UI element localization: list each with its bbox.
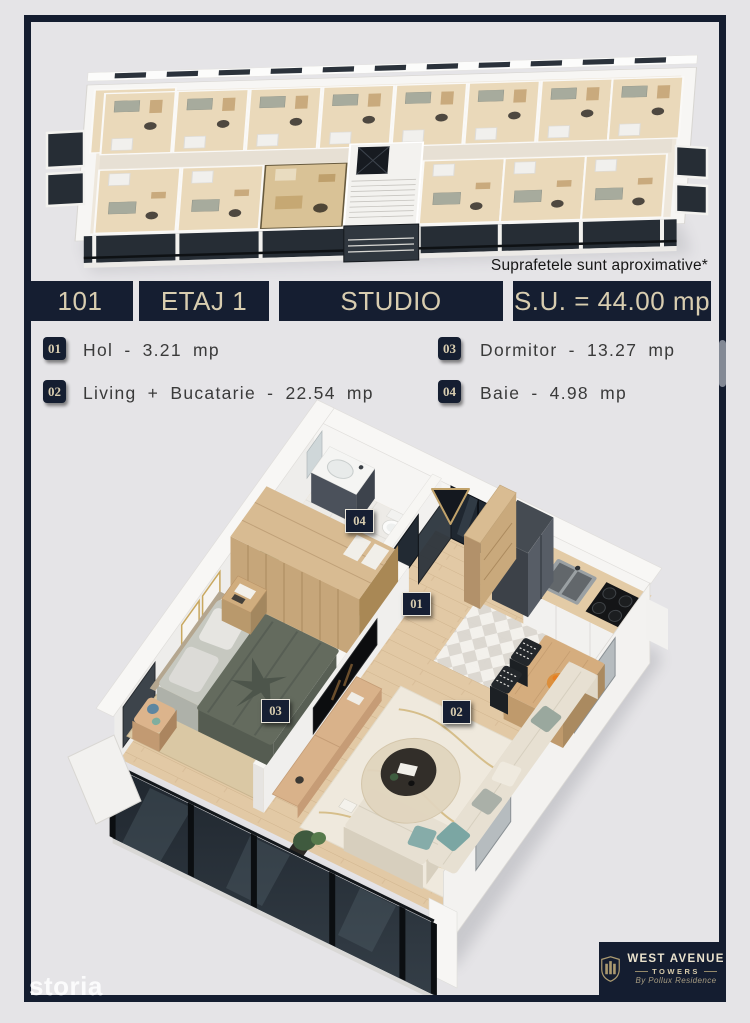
legend-num-03: 03 <box>438 337 461 360</box>
bedroom-window <box>123 662 155 747</box>
crest-icon <box>600 955 621 983</box>
floors <box>112 472 641 915</box>
logo-tagline: By Pollux Residence <box>636 976 717 986</box>
kitchen-counter <box>523 548 651 673</box>
artwork-layer <box>0 0 750 1023</box>
scrollbar-thumb[interactable] <box>719 340 726 387</box>
usable-area-badge: S.U. = 44.00 mp <box>513 281 711 321</box>
bed <box>150 591 340 768</box>
plan-marker-01: 01 <box>402 592 431 616</box>
bathroom-mirror <box>307 431 322 478</box>
tv-screen <box>313 619 377 734</box>
unit-number-badge: 101 <box>27 281 133 321</box>
storia-watermark: storia <box>29 971 103 1002</box>
legend-num-01: 01 <box>43 337 66 360</box>
coffee-table <box>286 716 479 897</box>
floor-badge: ETAJ 1 <box>139 281 269 321</box>
listing-image: Suprafetele sunt aproximative* 101 ETAJ … <box>0 0 750 1023</box>
tv-wall <box>253 566 409 818</box>
highlighted-unit <box>261 163 347 228</box>
plant <box>248 543 285 576</box>
legend-num-04: 04 <box>438 380 461 403</box>
legend-num-02: 02 <box>43 380 66 403</box>
entrance-door <box>419 486 506 583</box>
dining-set <box>490 635 605 748</box>
kitchen-pillar <box>464 485 516 609</box>
legend-text-hol: Hol - 3.21 mp <box>83 340 220 361</box>
logo-sub: TOWERS <box>652 967 700 976</box>
toilet <box>377 509 413 540</box>
unit-type-badge: STUDIO <box>279 281 503 321</box>
se-wall <box>429 583 668 988</box>
plan-marker-03: 03 <box>261 699 290 723</box>
logo-dash <box>704 971 717 972</box>
developer-logo: WEST AVENUE TOWERS By Pollux Residence <box>599 942 726 996</box>
legend-text-baie: Baie - 4.98 mp <box>480 383 627 404</box>
plant <box>286 824 329 861</box>
logo-dash <box>635 971 648 972</box>
border-frame <box>24 15 726 1002</box>
bathroom-door-glass <box>386 515 418 600</box>
balcony-glass-wall <box>68 735 437 1000</box>
picture-frames <box>182 572 220 655</box>
outer-wall-tops <box>96 400 662 877</box>
apartment-3d-render <box>68 400 668 1001</box>
fridge <box>492 500 554 617</box>
kitchen-backsplash <box>510 535 650 635</box>
nightstand <box>222 576 267 635</box>
tv-console <box>272 677 381 807</box>
entrance-arrow-icon <box>432 489 469 524</box>
legend-text-living: Living + Bucatarie - 22.54 mp <box>83 383 374 404</box>
legend-text-dormitor: Dormitor - 13.27 mp <box>480 340 675 361</box>
bath-hall-wall <box>386 478 441 599</box>
side-table <box>132 696 176 752</box>
plan-marker-04: 04 <box>345 509 374 533</box>
sofa <box>344 623 598 890</box>
nw-wall <box>114 415 329 767</box>
disclaimer-text: Suprafetele sunt aproximative* <box>491 257 708 275</box>
logo-name: WEST AVENUE <box>627 952 724 966</box>
building-floor-render <box>47 55 707 272</box>
plan-marker-02: 02 <box>442 700 471 724</box>
